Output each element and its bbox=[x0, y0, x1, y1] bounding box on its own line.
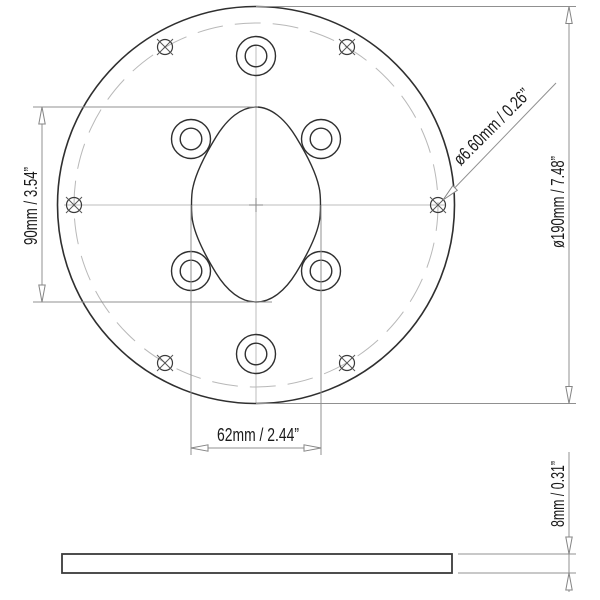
dim-label-thickness: 8mm / 0.31” bbox=[548, 461, 568, 527]
screw-hole bbox=[339, 39, 355, 55]
screw-hole bbox=[157, 39, 173, 55]
arrowhead-up-icon bbox=[566, 573, 572, 590]
leader-line bbox=[444, 83, 556, 199]
dim-label-cutout-height: 90mm / 3.54” bbox=[21, 167, 41, 245]
plate-side-view bbox=[62, 554, 452, 573]
arrowhead-up-icon bbox=[39, 107, 45, 124]
dim-thickness: 8mm / 0.31” bbox=[458, 452, 576, 592]
arrowhead-left-icon bbox=[191, 445, 208, 451]
counterbore-hole bbox=[302, 120, 341, 159]
centerlines bbox=[64, 45, 446, 403]
leader-screw-hole-diameter: ø6.60mm / 0.26” bbox=[443, 83, 556, 200]
screw-hole bbox=[339, 355, 355, 371]
technical-drawing-page: 90mm / 3.54” 62mm / 2.44” ø190mm / 7.48”… bbox=[0, 0, 600, 600]
arrowhead-right-icon bbox=[304, 445, 321, 451]
side-view-outline bbox=[62, 554, 452, 573]
technical-drawing-svg: 90mm / 3.54” 62mm / 2.44” ø190mm / 7.48”… bbox=[0, 0, 600, 600]
dim-label-outer-diameter: ø190mm / 7.48” bbox=[548, 156, 568, 248]
arrowhead-down-icon bbox=[566, 387, 572, 404]
dim-label-cutout-width: 62mm / 2.44” bbox=[217, 425, 299, 445]
arrowhead-up-icon bbox=[566, 7, 572, 24]
counterbore-hole bbox=[172, 120, 211, 159]
arrowhead-down-icon bbox=[566, 537, 572, 554]
dim-label-screw-hole-diameter: ø6.60mm / 0.26” bbox=[449, 84, 534, 169]
arrowhead-down-icon bbox=[39, 285, 45, 302]
screw-hole bbox=[157, 355, 173, 371]
